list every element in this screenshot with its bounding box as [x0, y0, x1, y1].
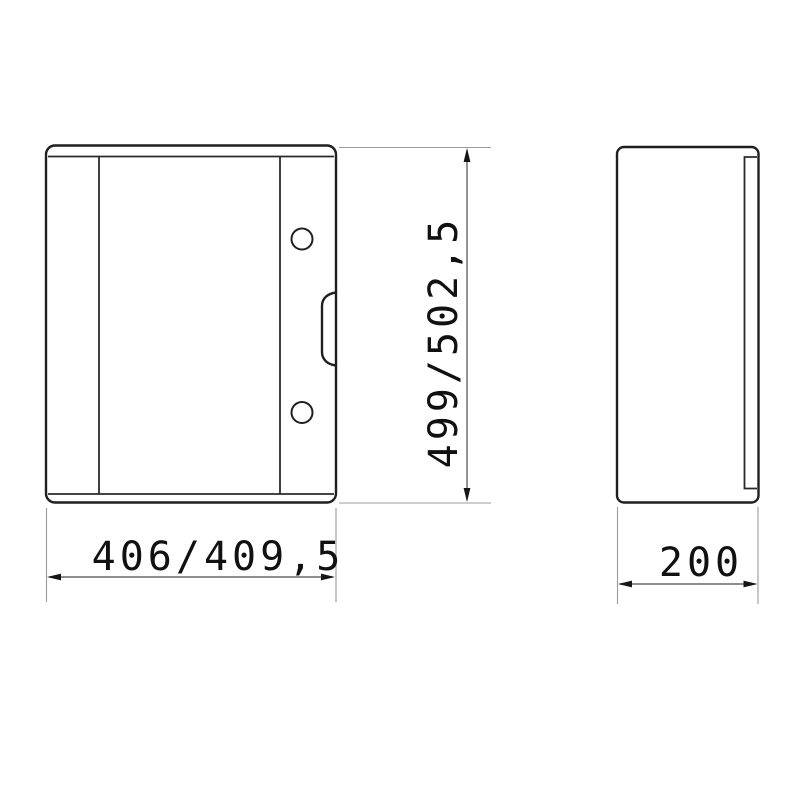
side-view [617, 147, 759, 503]
hole-bottom-icon [292, 402, 313, 423]
height-dimension: 499/502,5 [339, 148, 491, 504]
arrow-down-icon [464, 488, 471, 502]
depth-dimension: 200 [618, 507, 759, 604]
drawing-canvas: 499/502,5 406/409,5 200 [0, 0, 800, 800]
front-view [46, 146, 336, 503]
arrow-left-icon [47, 574, 61, 581]
width-dimension: 406/409,5 [47, 508, 345, 602]
arrow-right-icon [744, 581, 758, 588]
hole-top-icon [292, 229, 313, 250]
technical-drawing: 499/502,5 406/409,5 200 [0, 0, 800, 800]
height-dimension-label: 499/502,5 [421, 216, 467, 469]
side-door-edge-line [745, 157, 758, 489]
handle-recess-icon [322, 293, 336, 366]
depth-dimension-label: 200 [659, 540, 743, 586]
arrow-left-icon [618, 581, 632, 588]
width-dimension-label: 406/409,5 [92, 534, 345, 580]
front-view-outline [46, 146, 336, 503]
side-view-outline [617, 147, 759, 503]
arrow-up-icon [464, 148, 471, 162]
